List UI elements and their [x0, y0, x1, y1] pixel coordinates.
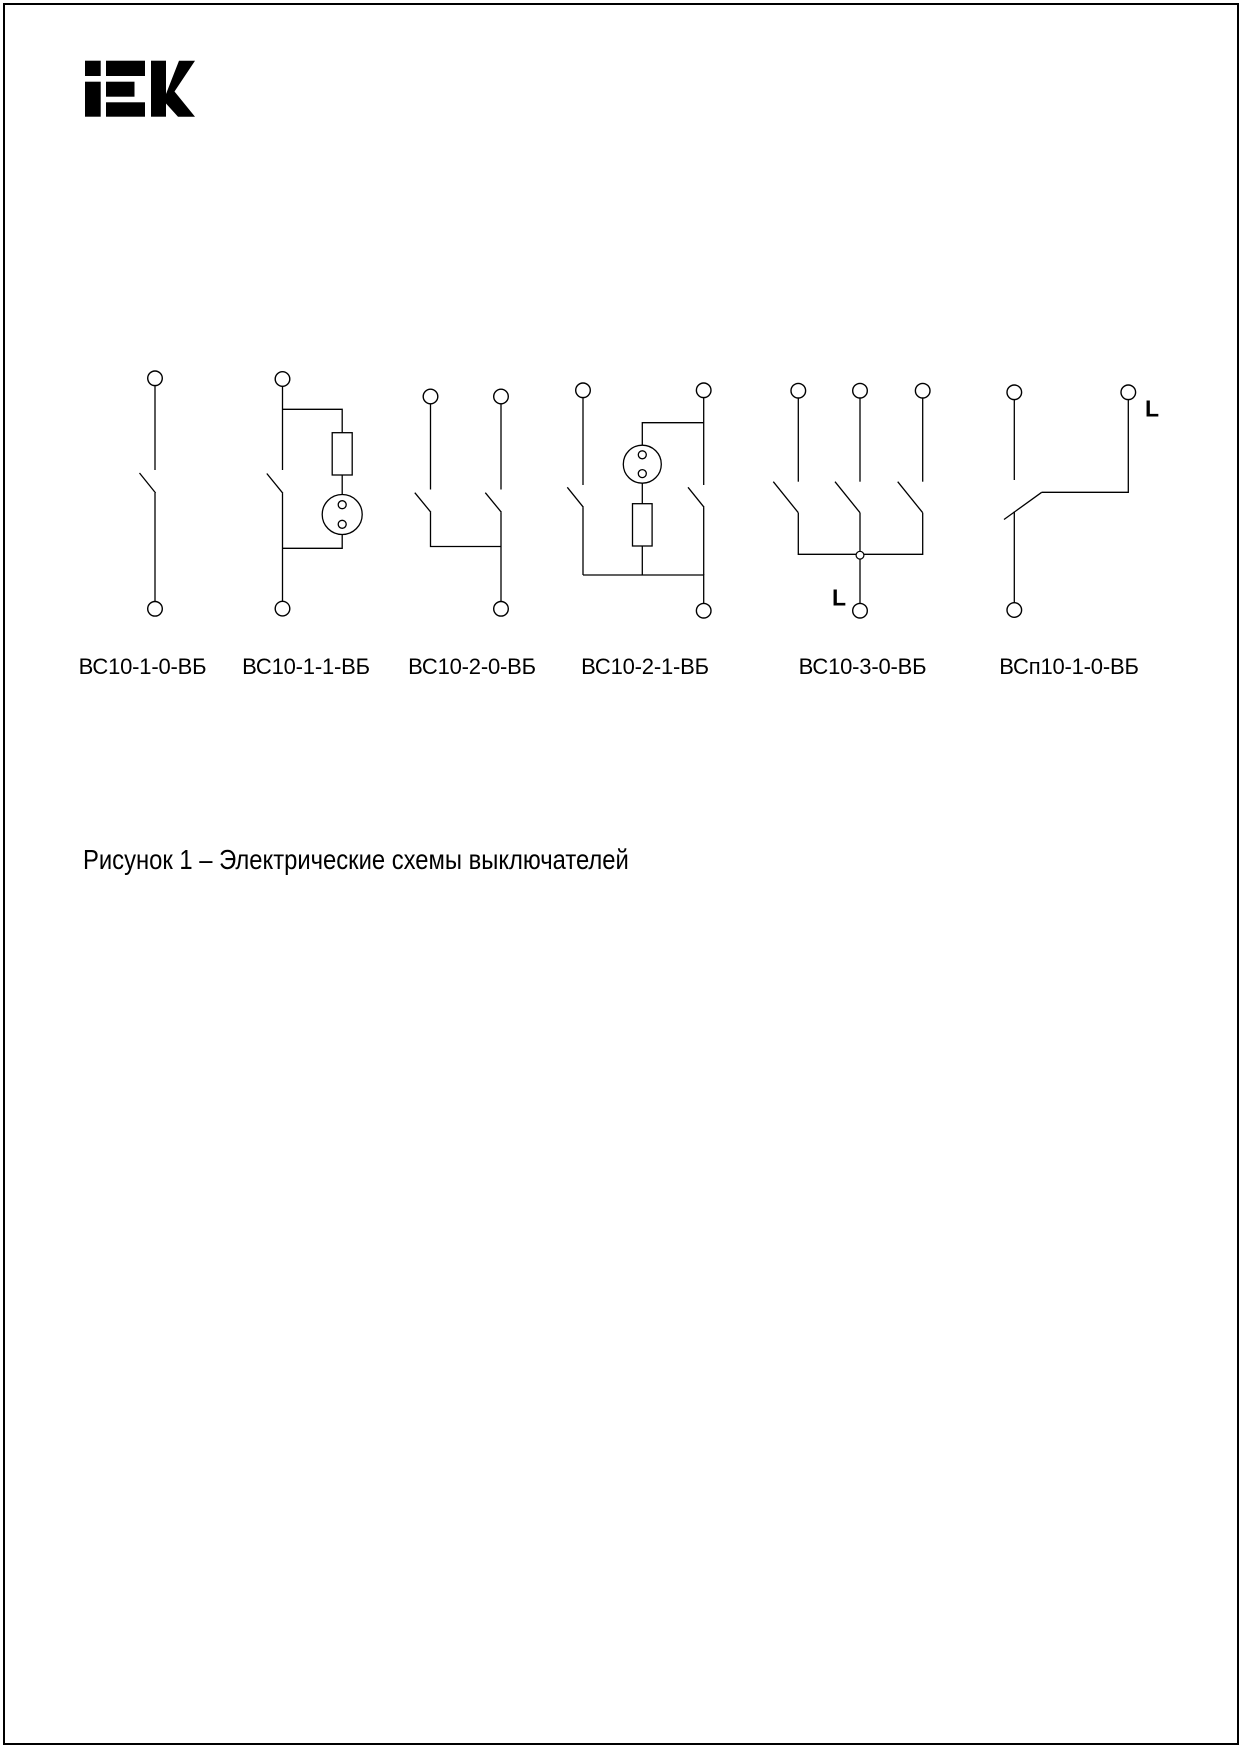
- terminal: [915, 383, 930, 398]
- terminal: [853, 603, 868, 618]
- lamp-electrode: [638, 451, 646, 459]
- document-page: iEK: [0, 0, 1244, 1752]
- logo-e-top-bar: [106, 61, 145, 76]
- lamp-electrode: [338, 520, 346, 528]
- terminal: [494, 602, 509, 617]
- terminal: [853, 383, 868, 398]
- diagram-label-vs10-2-0-vb: ВС10-2-0-ВБ: [408, 654, 536, 680]
- logo-e-bottom-bar: [106, 102, 145, 116]
- switch-blade: [567, 487, 583, 507]
- terminal: [1121, 385, 1136, 400]
- terminal: [148, 602, 163, 617]
- line-l-label: L: [832, 585, 846, 611]
- diagram-vs10-1-1-vb: [267, 372, 362, 616]
- logo-i-dot: [85, 61, 101, 76]
- line-l-label: L: [1145, 396, 1159, 422]
- switch-blade: [773, 482, 798, 513]
- wire: [642, 423, 703, 446]
- diagram-vs10-1-0-vb: [140, 371, 163, 616]
- terminal: [696, 383, 711, 398]
- iek-logo: iEK: [85, 61, 195, 117]
- diagram-label-vs10-1-0-vb: ВС10-1-0-ВБ: [79, 654, 207, 680]
- switch-blade: [835, 482, 860, 513]
- terminal: [791, 383, 806, 398]
- logo-i-stem: [85, 82, 101, 117]
- switch-blade: [140, 473, 156, 493]
- terminal: [576, 383, 591, 398]
- switch-blade: [267, 474, 283, 494]
- diagram-vs10-3-0-vb: L: [773, 383, 930, 618]
- wire: [283, 409, 343, 432]
- terminal: [1007, 603, 1022, 618]
- diagram-label-vs10-2-1-vb: ВС10-2-1-ВБ: [581, 654, 709, 680]
- wire: [283, 535, 343, 549]
- junction-node: [856, 551, 864, 559]
- terminal: [1007, 385, 1022, 400]
- switch-blade: [485, 493, 501, 513]
- diagram-vsp10-1-0-vb: L: [1004, 385, 1159, 617]
- diagram-label-vsp10-1-0-vb: ВСп10-1-0-ВБ: [999, 654, 1138, 680]
- terminal: [696, 603, 711, 618]
- lamp-electrode: [638, 470, 646, 478]
- terminal: [275, 372, 290, 387]
- figure-artwork: iEK: [0, 0, 1244, 1752]
- resistor: [332, 433, 352, 475]
- resistor: [633, 504, 653, 546]
- logo-k-arms: [166, 61, 195, 117]
- logo-k-stem: [151, 61, 166, 117]
- terminal: [148, 371, 163, 386]
- switch-blade: [415, 493, 431, 513]
- diagram-label-vs10-3-0-vb: ВС10-3-0-ВБ: [799, 654, 927, 680]
- terminal: [275, 601, 290, 616]
- wire: [583, 575, 704, 603]
- logo-e-mid-bar: [106, 82, 135, 97]
- terminal: [423, 389, 438, 404]
- figure-caption: Рисунок 1 – Электрические схемы выключат…: [83, 844, 629, 876]
- diagram-label-vs10-1-1-vb: ВС10-1-1-ВБ: [242, 654, 370, 680]
- switch-blade: [688, 487, 704, 507]
- wire: [1042, 400, 1129, 493]
- wire: [431, 512, 502, 546]
- switch-blade: [1004, 492, 1042, 519]
- diagram-vs10-2-1-vb: [567, 383, 711, 618]
- lamp-electrode: [338, 501, 346, 509]
- diagram-vs10-2-0-vb: [415, 389, 509, 616]
- switch-blade: [898, 482, 923, 513]
- terminal: [494, 389, 509, 404]
